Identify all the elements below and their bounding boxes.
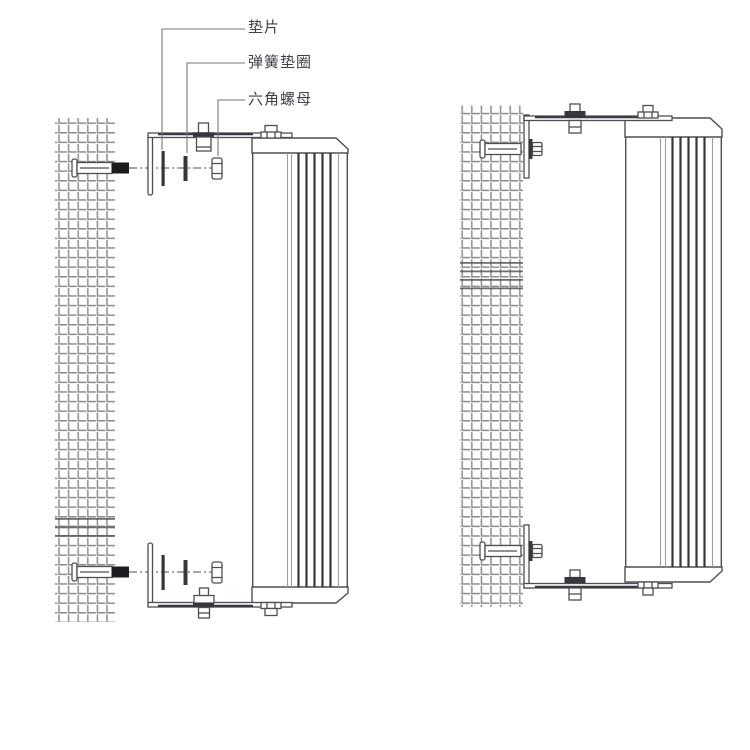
speaker-hanger-bolt-top [261, 126, 281, 139]
bracket-bolt-bottom [193, 588, 214, 618]
spring-washer-top [184, 156, 188, 181]
spring-washer-bottom [184, 560, 188, 585]
flat-washer-bottom [162, 555, 165, 590]
wall-hatch-left [55, 118, 115, 622]
assembled-view [460, 104, 722, 607]
flat-washer-top [162, 151, 165, 186]
column-speaker-left [252, 138, 348, 603]
hex-nut-top [212, 158, 222, 179]
callout-hex-nut: 六角螺母 [248, 92, 312, 108]
hanger-bolt-bottom-right [638, 582, 658, 595]
technical-drawing [0, 0, 750, 750]
diagram-canvas: 垫片 弹簧垫圈 六角螺母 [0, 0, 750, 750]
speaker-hanger-bolt-bottom [261, 603, 281, 616]
hanger-bolt-top-right [638, 106, 658, 119]
wall-hatch-right [460, 105, 523, 607]
bracket-bolt-top [193, 123, 214, 151]
hex-nut-bottom [212, 562, 222, 583]
exploded-view [55, 29, 348, 622]
column-speaker-right [625, 118, 722, 582]
callout-flat-washer: 垫片 [248, 20, 280, 36]
callout-spring-washer: 弹簧垫圈 [248, 55, 312, 71]
